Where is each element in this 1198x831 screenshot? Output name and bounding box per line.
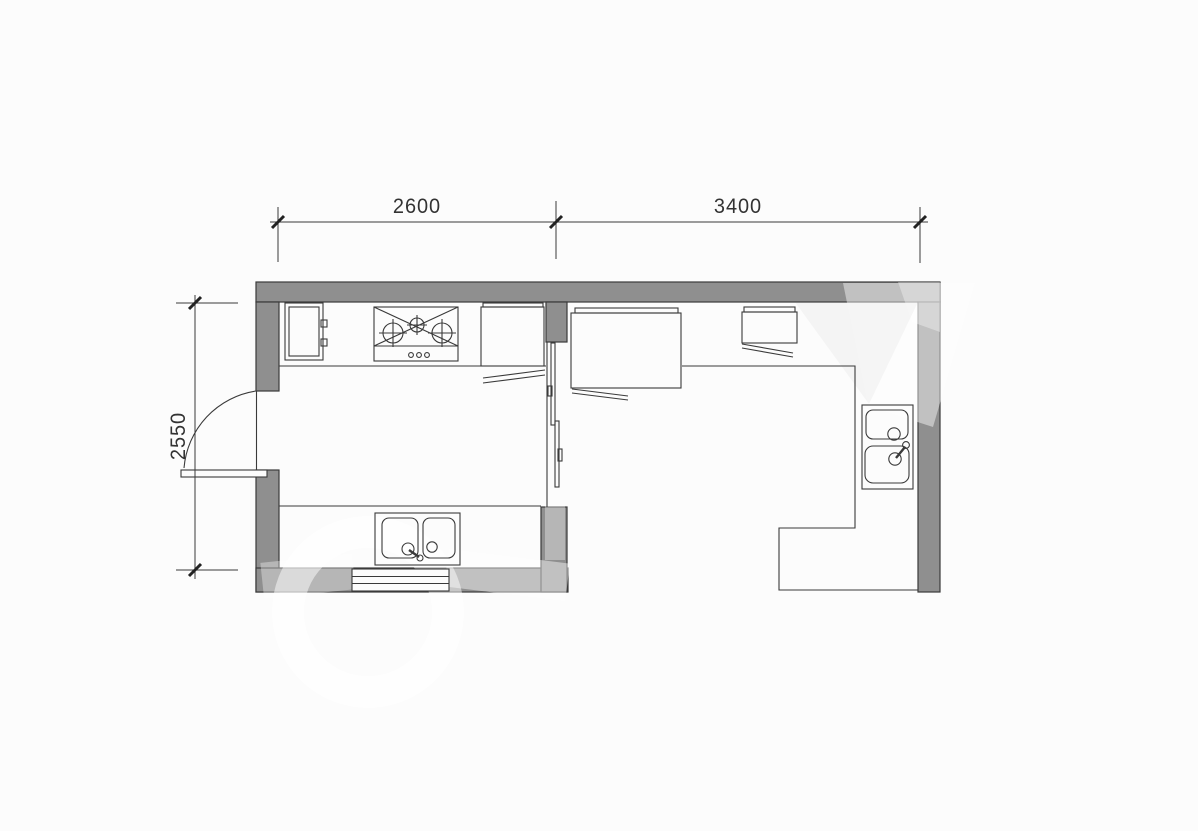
window xyxy=(352,569,449,591)
refrigerator-cabinet xyxy=(285,303,327,360)
sliding-door xyxy=(547,342,562,507)
dimension-label-top-right: 3400 xyxy=(698,195,778,219)
hinged-entry-door xyxy=(181,391,267,477)
wall-top xyxy=(256,282,940,302)
dimension-label-top-left: 2600 xyxy=(377,195,457,219)
counter-edge-left-room xyxy=(279,366,546,506)
wall-cabinet-open-door xyxy=(481,303,545,383)
floor-plan-canvas: 2600 3400 2550 xyxy=(0,0,1198,831)
wall-left-upper xyxy=(256,302,279,391)
overhead-cabinet-open-door xyxy=(742,307,797,357)
dimension-label-left: 2550 xyxy=(167,396,191,476)
wall-middle-top-stub xyxy=(546,302,567,342)
large-appliance-open-door xyxy=(571,308,681,400)
gas-stove-3-burner xyxy=(374,307,458,361)
watermark xyxy=(260,282,975,692)
